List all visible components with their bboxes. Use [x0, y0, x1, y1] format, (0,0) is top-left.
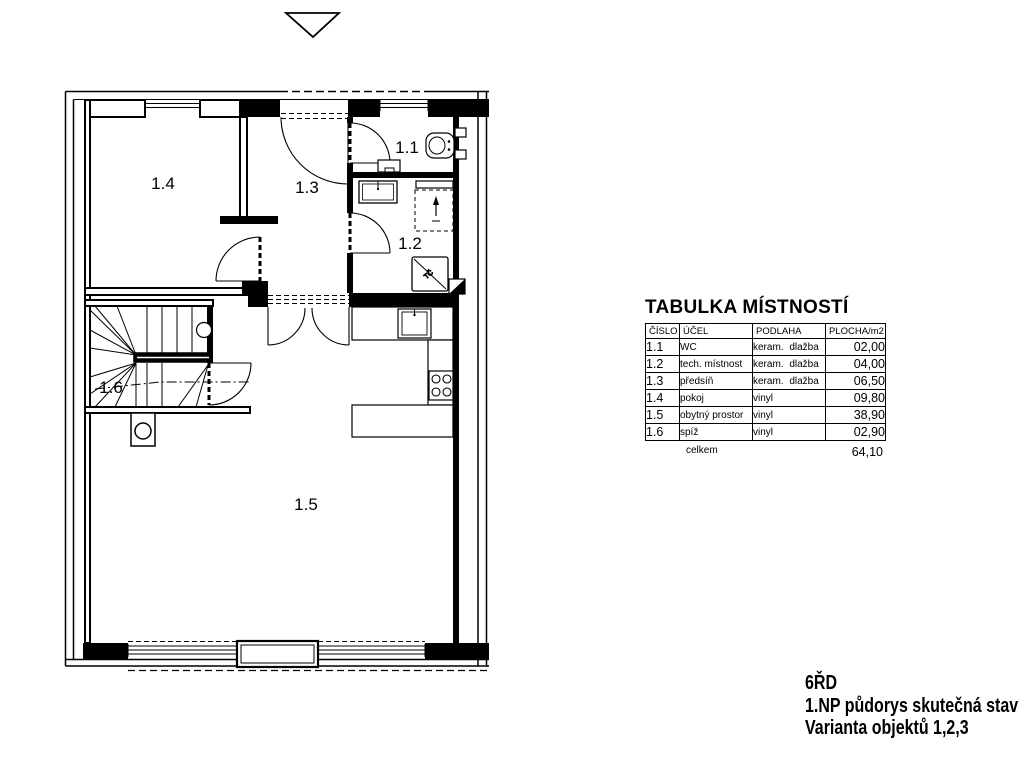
- room-label-1-6: 1.6: [99, 378, 123, 397]
- cell-purpose: předsíň: [680, 373, 753, 390]
- heat-pump-unit: TČ: [412, 257, 448, 291]
- room-label-1-3: 1.3: [295, 178, 319, 197]
- cell-number: 1.1: [646, 339, 680, 356]
- header-floor: PODLAHA: [753, 324, 826, 339]
- header-number: ČÍSLO: [646, 324, 680, 339]
- lintel-lines: [268, 114, 349, 304]
- table-row: 1.5 obytný prostor vinyl 38,90: [646, 407, 886, 424]
- room-label-1-1: 1.1: [395, 138, 419, 157]
- cell-area: 04,00: [826, 356, 886, 373]
- wc-fixtures: [378, 128, 466, 172]
- cell-area: 02,00: [826, 339, 886, 356]
- table-total-row: celkem 64,10: [645, 445, 891, 459]
- title-block-line3: Varianta objektů 1,2,3: [805, 717, 1018, 740]
- table-row: 1.1 WC keram. dlažba 02,00: [646, 339, 886, 356]
- cell-floor: keram. dlažba: [753, 339, 826, 356]
- title-block-line2: 1.NP půdorys skutečná stav: [805, 695, 1018, 718]
- title-block: 6ŘD 1.NP půdorys skutečná stav Varianta …: [805, 672, 1018, 740]
- cell-area: 38,90: [826, 407, 886, 424]
- title-block-line1: 6ŘD: [805, 672, 1018, 695]
- room-label-1-2: 1.2: [398, 234, 422, 253]
- appliance-space: [415, 190, 453, 231]
- room-label-1-4: 1.4: [151, 174, 175, 193]
- table-header-row: ČÍSLO ÚČEL PODLAHA PLOCHA/m2: [646, 324, 886, 339]
- cell-area: 02,90: [826, 424, 886, 441]
- room-table-title: TABULKA MÍSTNOSTÍ: [645, 297, 891, 319]
- cell-number: 1.6: [646, 424, 680, 441]
- cell-number: 1.2: [646, 356, 680, 373]
- kitchen-island: [352, 405, 453, 437]
- exterior-walls: [66, 92, 490, 671]
- chimney-marker: [449, 279, 465, 294]
- header-purpose: ÚČEL: [680, 324, 753, 339]
- cell-floor: vinyl: [753, 424, 826, 441]
- room-label-1-5: 1.5: [294, 495, 318, 514]
- cell-purpose: spíž: [680, 424, 753, 441]
- room-table-block: TABULKA MÍSTNOSTÍ ČÍSLO ÚČEL PODLAHA PLO…: [645, 297, 891, 459]
- shelf: [416, 181, 453, 188]
- cell-purpose: pokoj: [680, 390, 753, 407]
- cell-floor: vinyl: [753, 390, 826, 407]
- cell-number: 1.4: [646, 390, 680, 407]
- table-row: 1.6 spíž vinyl 02,90: [646, 424, 886, 441]
- shaft: [455, 150, 466, 159]
- kitchen-fixtures: [352, 307, 453, 437]
- room-table: ČÍSLO ÚČEL PODLAHA PLOCHA/m2 1.1 WC kera…: [645, 323, 886, 441]
- total-label: celkem: [686, 445, 718, 456]
- doors: [209, 117, 390, 405]
- cell-number: 1.3: [646, 373, 680, 390]
- staircase: [90, 306, 250, 446]
- cooktop: [429, 371, 453, 400]
- header-area: PLOCHA/m2: [826, 324, 886, 339]
- entrance-arrow-marker: [286, 13, 339, 37]
- table-row: 1.2 tech. místnost keram. dlažba 04,00: [646, 356, 886, 373]
- table-row: 1.3 předsíň keram. dlažba 06,50: [646, 373, 886, 390]
- table-row: 1.4 pokoj vinyl 09,80: [646, 390, 886, 407]
- cell-purpose: tech. místnost: [680, 356, 753, 373]
- cell-area: 09,80: [826, 390, 886, 407]
- cell-purpose: WC: [680, 339, 753, 356]
- shaft: [455, 128, 466, 137]
- cell-area: 06,50: [826, 373, 886, 390]
- cell-floor: keram. dlažba: [753, 373, 826, 390]
- cell-floor: vinyl: [753, 407, 826, 424]
- cell-floor: keram. dlažba: [753, 356, 826, 373]
- terrace-door: [237, 641, 318, 667]
- cell-purpose: obytný prostor: [680, 407, 753, 424]
- total-value: 64,10: [852, 445, 883, 459]
- cell-number: 1.5: [646, 407, 680, 424]
